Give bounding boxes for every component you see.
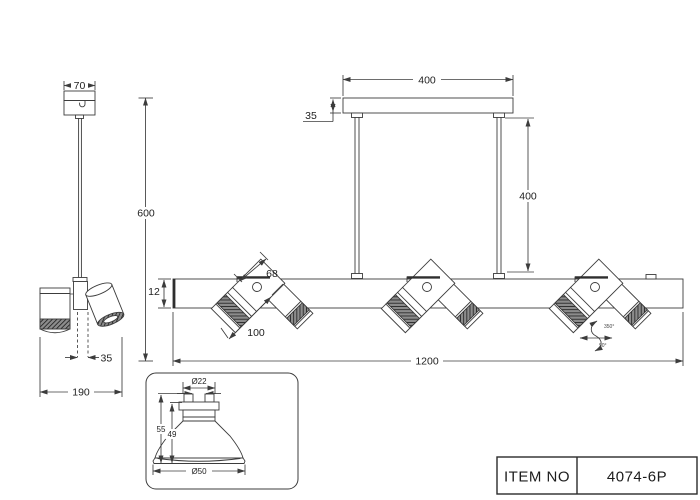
technical-drawing-sheet: 70 600 (0, 0, 700, 500)
dim-canopy-height-label: 35 (305, 110, 317, 122)
dim-center-offset-label: 35 (101, 353, 113, 365)
dim-bulb-face-diameter-label: Ø50 (191, 467, 207, 476)
pivot-knob (591, 283, 600, 292)
dim-bar-length-label: 1200 (415, 356, 439, 368)
item-no-label: ITEM NO (504, 469, 570, 486)
pivot-knob (253, 283, 262, 292)
pendant-lamp-drawing: 70 600 (0, 0, 700, 500)
dim-canopy-width-label: 70 (74, 80, 86, 92)
dim-fixture-width-label: 190 (72, 387, 90, 399)
dim-canopy-length-label: 400 (418, 75, 436, 87)
bar-end-tab (646, 275, 656, 280)
item-no-value: 4074-6P (607, 469, 667, 486)
center-block (74, 282, 88, 310)
title-block: ITEM NO 4074-6P (497, 457, 697, 494)
rotation-horizontal-label: 350° (604, 324, 614, 330)
dim-bulb-body-height-label: 49 (168, 430, 177, 439)
canopy-rod-cap (76, 115, 84, 119)
ceiling-plate (343, 98, 513, 113)
dim-bulb-overall-height-label: 55 (157, 425, 166, 434)
dim-suspension-height-label: 600 (137, 208, 155, 220)
block-cap (73, 278, 87, 282)
sheet-background (0, 0, 700, 500)
rotation-vertical-label: 90° (599, 343, 607, 349)
spot-head-side (40, 288, 70, 333)
dim-bulb-top-diameter-label: Ø22 (191, 377, 207, 386)
dim-rod-length-label: 400 (519, 191, 537, 203)
dim-spot-length-label: 100 (247, 327, 265, 339)
dim-spot-width-label: 68 (266, 268, 278, 280)
pivot-knob (423, 283, 432, 292)
dim-bar-thickness-label: 12 (148, 286, 160, 298)
